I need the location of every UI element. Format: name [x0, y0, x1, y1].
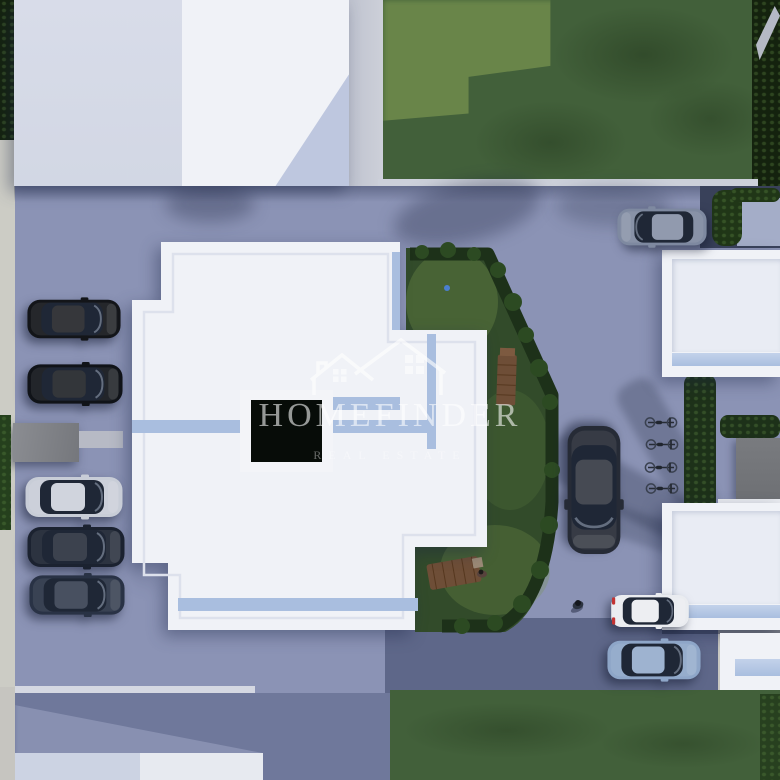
bush-left-edge	[0, 415, 11, 530]
driving-car-dark	[562, 424, 626, 556]
roof-right-half	[182, 0, 349, 186]
tree-shadow-road-1	[165, 186, 255, 222]
roof-right-part	[140, 753, 263, 780]
pedestrian	[570, 596, 586, 614]
hedge-strip-bottom-right-edge	[760, 694, 780, 780]
parked-car-black-1	[26, 296, 122, 342]
tree-row-top-left	[0, 0, 14, 148]
courtyard-void	[251, 400, 322, 462]
bicycle-1	[643, 416, 679, 429]
building-right-upper	[662, 250, 780, 377]
main-building-roof	[110, 230, 500, 640]
hedge-vertical-right	[684, 374, 716, 512]
parked-car-light-blue	[606, 634, 702, 686]
garage-roof	[736, 438, 780, 499]
roof-left-part	[15, 753, 140, 780]
terrace-top-right	[700, 186, 780, 248]
terrace-hedge-top	[730, 188, 780, 202]
lawn-bottom	[390, 690, 780, 780]
hedge-horizontal-right	[720, 415, 780, 438]
glass-band	[672, 353, 780, 366]
bicycle-rack	[643, 416, 681, 500]
path-between-roof-and-lawn	[349, 0, 383, 186]
building-top-left-roof	[14, 0, 349, 186]
bicycle-3	[643, 461, 679, 474]
parked-car-black-2	[26, 360, 124, 408]
aerial-site-render: HOMEFINDER REAL ESTATE	[0, 0, 780, 780]
parked-car-navy	[26, 524, 126, 570]
tree-row-top-right	[752, 0, 780, 188]
parked-car-steel-blue	[28, 572, 126, 618]
terrace-floor	[737, 198, 780, 246]
parked-suv-gray	[616, 204, 708, 250]
roof-inner-field	[672, 259, 780, 352]
building-bottom-roof	[15, 753, 263, 780]
bicycle-2	[644, 438, 680, 451]
lawn-top	[383, 0, 755, 183]
lawn-curb	[378, 179, 758, 186]
utility-shed	[13, 423, 79, 462]
parked-car-white	[610, 582, 690, 640]
curb-bottom-left	[15, 686, 255, 693]
roof-diagonal-shadow	[182, 0, 349, 186]
lawn-bottom-shade	[390, 690, 780, 780]
lawn-top-shade-blotches	[383, 0, 755, 183]
bicycle-4	[644, 482, 680, 495]
parked-car-silver	[24, 474, 124, 520]
roof-left-half	[14, 0, 182, 186]
terrace-bottom-right	[720, 633, 780, 690]
garden-path-notch	[756, 6, 780, 60]
glass-band	[735, 659, 780, 676]
